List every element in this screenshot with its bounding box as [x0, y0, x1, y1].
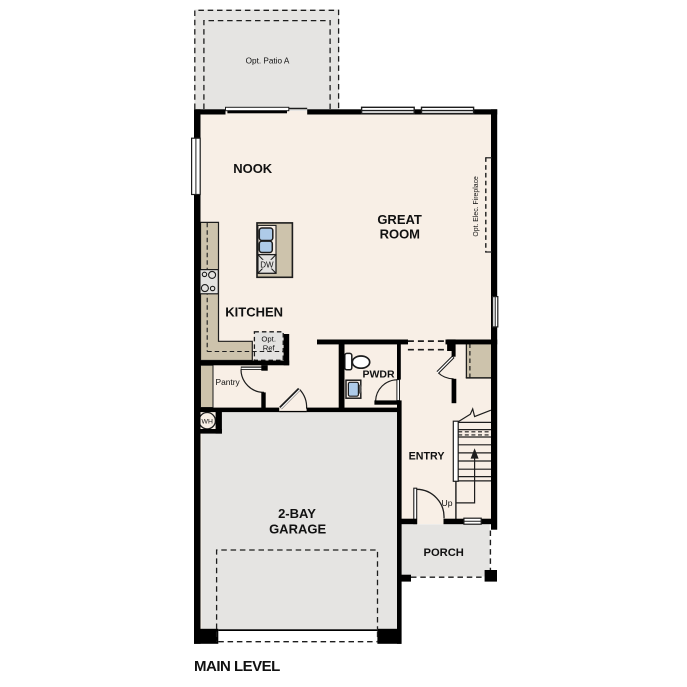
- svg-text:Up: Up: [442, 498, 453, 508]
- svg-text:PORCH: PORCH: [423, 547, 463, 559]
- svg-text:GREAT: GREAT: [377, 212, 422, 227]
- svg-text:Opt.: Opt.: [261, 335, 276, 344]
- svg-text:Ref: Ref: [263, 344, 276, 353]
- svg-text:ENTRY: ENTRY: [409, 451, 445, 463]
- svg-text:NOOK: NOOK: [233, 161, 273, 176]
- svg-text:Pantry: Pantry: [215, 377, 240, 387]
- svg-text:GARAGE: GARAGE: [269, 522, 326, 537]
- svg-text:MAIN LEVEL: MAIN LEVEL: [194, 658, 280, 675]
- svg-text:KITCHEN: KITCHEN: [225, 304, 283, 319]
- svg-text:Opt. Patio A: Opt. Patio A: [246, 56, 290, 65]
- svg-text:WH: WH: [202, 418, 213, 425]
- svg-text:ROOM: ROOM: [380, 227, 420, 242]
- svg-text:PWDR: PWDR: [362, 368, 394, 380]
- svg-text:Opt. Elec. Fireplace: Opt. Elec. Fireplace: [473, 176, 480, 237]
- svg-text:2-BAY: 2-BAY: [278, 506, 316, 521]
- svg-text:DW: DW: [260, 260, 274, 269]
